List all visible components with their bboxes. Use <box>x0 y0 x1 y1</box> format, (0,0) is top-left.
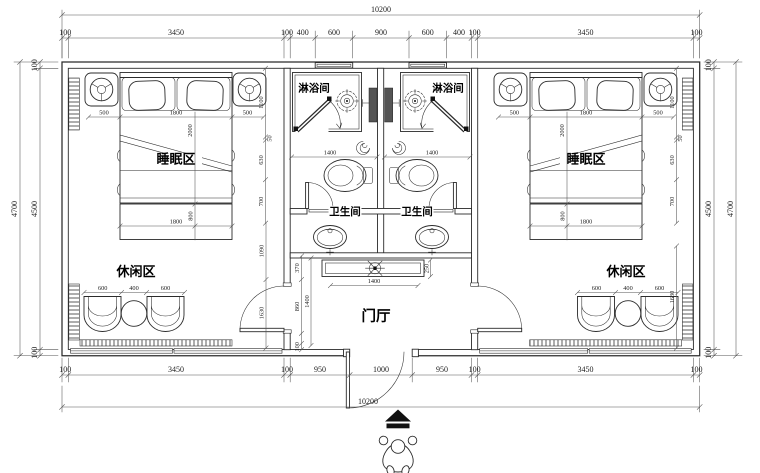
dim-text: 500 <box>99 110 108 117</box>
floor-drain-icon <box>336 90 359 113</box>
label-sleep-left: 睡眠区 <box>156 152 195 167</box>
shower-enclosure <box>401 73 470 132</box>
dim-overall-width-top: 10200 <box>371 5 391 14</box>
dim-text: 1800 <box>170 110 183 117</box>
door-hinge <box>294 127 299 132</box>
bath-wall-right <box>455 209 472 215</box>
leisure-left <box>84 297 184 332</box>
headboard <box>120 73 232 78</box>
person-figure <box>379 436 417 473</box>
dim-text: 700 <box>258 197 265 206</box>
dim-text: 1000 <box>373 365 389 374</box>
partition-right-upper <box>472 68 478 286</box>
dim-text: 600 <box>98 285 107 292</box>
dim-text: 400 <box>297 28 309 37</box>
dim-text: 1090 <box>259 245 266 258</box>
round-table <box>121 301 147 327</box>
bath-right-group: 卫生间 <box>390 142 457 218</box>
dim-text: 1630 <box>259 307 266 320</box>
dim-text: 900 <box>375 28 387 37</box>
door-threshold <box>432 210 453 213</box>
pillow <box>539 80 576 110</box>
pillow <box>187 80 224 110</box>
bath-door-leaf <box>453 183 456 209</box>
door-jamb <box>283 283 291 286</box>
dim-overall-width-bottom: 10200 <box>358 397 378 406</box>
door-hinge <box>327 97 332 102</box>
drain-mark <box>428 230 436 256</box>
dim-text: 950 <box>314 365 326 374</box>
label-sleep-right: 睡眠区 <box>566 152 605 167</box>
dim-text: 630 <box>669 155 676 164</box>
shower-door-leaf <box>431 99 466 132</box>
dim-left-group: 4700 100 4500 100 <box>10 59 58 359</box>
shower-door-swing <box>329 101 342 129</box>
dim-text: 100 <box>281 28 293 37</box>
dim-text: 50 <box>267 135 274 141</box>
shower-room-left-group: 淋浴间 <box>293 73 362 134</box>
entrance-door-leaf <box>346 352 349 408</box>
dim-text: 3450 <box>578 365 594 374</box>
dim-text: 1800 <box>170 219 183 226</box>
bottom-right-baseboard <box>530 340 682 346</box>
door-threshold <box>309 210 330 213</box>
toilet-paper-icon <box>357 142 370 155</box>
door-hinge <box>464 127 469 132</box>
dim-text: 370 <box>294 263 301 272</box>
dim-text: 2000 <box>187 124 194 137</box>
round-table <box>615 301 641 327</box>
dim-text: 100 <box>294 342 301 351</box>
basin-right-group <box>416 226 449 256</box>
dim-text: 100 <box>59 365 71 374</box>
dim-text: 800 <box>560 211 567 220</box>
dim-text: 1400 <box>304 295 311 308</box>
toilet-icon <box>390 160 439 192</box>
entrance-arrow-bar <box>387 424 410 429</box>
entrance-arrow-icon <box>385 410 411 422</box>
entrance-person-group <box>379 410 417 473</box>
dim-text: 1400 <box>368 278 381 285</box>
headboard <box>530 73 642 78</box>
drain-mark <box>326 230 334 256</box>
leisure-right <box>578 297 679 332</box>
basin-inner <box>317 229 343 246</box>
dim-text: 700 <box>669 197 676 206</box>
dim-text: 500 <box>510 110 519 117</box>
top-vent-left <box>315 63 353 68</box>
dim-top-group: 10200 100 3450 100 400 600 900 600 400 1… <box>59 5 702 58</box>
room-door-leaf <box>240 328 284 331</box>
blanket-lines <box>120 171 232 199</box>
top-vent-left-inner <box>317 64 351 66</box>
floor-drain-icon <box>404 90 427 113</box>
center-wall <box>378 68 384 256</box>
dim-text: 500 <box>243 110 252 117</box>
door-hinge <box>431 97 436 102</box>
dim-text: 630 <box>258 155 265 164</box>
dim-bottom-group: 100 3450 100 950 1000 950 100 3450 100 1… <box>59 358 702 412</box>
dim-text: 2000 <box>559 124 566 137</box>
dim-text: 400 <box>129 285 138 292</box>
label-leisure-right: 休闲区 <box>605 264 645 279</box>
label-shower-left: 淋浴间 <box>298 82 330 95</box>
left-wall-window-upper <box>69 78 80 130</box>
bedroom-right-group: 睡眠区 休闲区 <box>478 73 678 332</box>
shower-enclosure <box>293 73 362 132</box>
dim-text: 100 <box>704 59 713 71</box>
left-wall-window-lower <box>69 284 80 340</box>
dim-overall-height-left: 4700 <box>10 201 19 217</box>
bath-door-leaf <box>306 183 309 209</box>
dim-text: 50 <box>677 135 684 141</box>
blanket-lines <box>530 171 642 199</box>
dim-text: 800 <box>188 211 195 220</box>
dim-text: 100 <box>469 28 481 37</box>
dim-text: 1630 <box>669 291 676 304</box>
ceiling-light-icon <box>494 73 527 106</box>
dim-right-group: 100 4500 100 4700 <box>704 59 742 359</box>
label-toilet-left: 卫生间 <box>329 205 361 218</box>
pillow <box>597 80 634 110</box>
label-leisure-left: 休闲区 <box>115 264 155 279</box>
floor-plan: 淋浴间 淋浴间 卫生间 <box>0 0 760 473</box>
basin-inner <box>419 229 445 246</box>
dim-text: 1800 <box>580 219 593 226</box>
armchair-inner <box>88 297 116 327</box>
dim-text: 100 <box>59 28 71 37</box>
dim-text: 3450 <box>578 28 594 37</box>
right-wall-window-upper <box>682 78 693 130</box>
shower-room-right-group: 淋浴间 <box>401 73 470 134</box>
room-door-swing <box>478 286 522 330</box>
shower-door-swing <box>420 101 433 129</box>
entrance-opening <box>350 348 413 358</box>
dim-line-overall-bottom <box>62 386 700 412</box>
dim-text: 400 <box>623 285 632 292</box>
armchair-inner <box>151 297 179 327</box>
dim-text: 1800 <box>580 110 593 117</box>
top-vent-right-inner <box>411 64 445 66</box>
pipe-shaft-right <box>385 88 393 122</box>
toilet-paper-icon <box>393 142 406 155</box>
pillow <box>129 80 166 110</box>
right-wall-window-lower <box>682 284 693 340</box>
top-vent-right <box>409 63 447 68</box>
floor-plan-drawing: 淋浴间 淋浴间 卫生间 <box>0 0 760 473</box>
ceiling-light-icon <box>85 73 118 106</box>
dim-text: 600 <box>592 285 601 292</box>
room-door-leaf <box>478 328 522 331</box>
partition-left-upper <box>284 68 290 286</box>
bottom-left-baseboard <box>80 340 232 346</box>
dim-overall-height-right: 4700 <box>726 201 735 217</box>
dim-text: 100 <box>691 365 703 374</box>
dim-text: 3450 <box>168 365 184 374</box>
label-toilet-right: 卫生间 <box>401 205 433 218</box>
armchair-inner <box>582 297 610 327</box>
dim-text: 4500 <box>704 201 713 217</box>
dim-text: 100 <box>469 365 481 374</box>
dim-text: 1100 <box>258 96 265 108</box>
dim-text: 1400 <box>324 150 337 157</box>
dim-text: 950 <box>436 365 448 374</box>
dim-text: 100 <box>30 347 39 359</box>
shower-door-leaf <box>297 99 332 132</box>
bath-wall-left <box>290 209 307 215</box>
dim-text: 100 <box>691 28 703 37</box>
dim-text: 600 <box>655 285 664 292</box>
dim-text: 600 <box>328 28 340 37</box>
dim-text: 600 <box>422 28 434 37</box>
dim-text: 100 <box>30 59 39 71</box>
entrance-jamb-right <box>412 349 418 357</box>
toilet-icon <box>324 160 373 192</box>
dim-text: 860 <box>294 302 301 311</box>
dim-text: 100 <box>281 365 293 374</box>
foyer-top-wall <box>290 253 471 258</box>
dim-text: 250 <box>423 264 430 273</box>
label-shower-right: 淋浴间 <box>432 82 464 95</box>
label-foyer: 门厅 <box>362 307 391 325</box>
dim-text: 600 <box>161 285 170 292</box>
dim-text: 400 <box>453 28 465 37</box>
dim-text: 1100 <box>669 96 676 108</box>
basin-left-group <box>314 226 347 256</box>
dim-text: 1400 <box>426 150 439 157</box>
bath-left-group: 卫生间 <box>306 142 373 218</box>
dim-text: 500 <box>653 110 662 117</box>
dim-text: 100 <box>704 347 713 359</box>
dim-text: 3450 <box>168 28 184 37</box>
pipe-shaft-left <box>369 88 377 122</box>
dim-text: 4500 <box>30 201 39 217</box>
